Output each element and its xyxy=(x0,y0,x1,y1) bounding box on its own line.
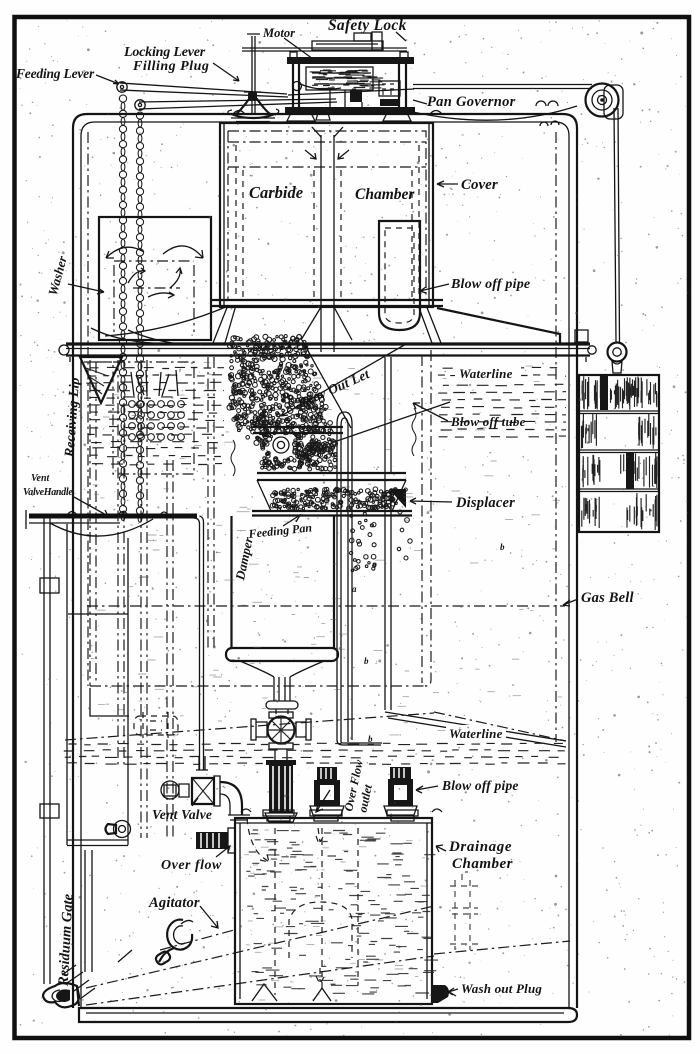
svg-text:Pan Governor: Pan Governor xyxy=(427,94,516,110)
svg-text:Vent Valve: Vent Valve xyxy=(152,807,212,822)
svg-text:b: b xyxy=(368,734,373,744)
svg-text:Cover: Cover xyxy=(461,177,498,193)
svg-text:ValveHandle: ValveHandle xyxy=(23,487,73,498)
svg-text:Safety Lock: Safety Lock xyxy=(328,17,407,34)
svg-text:b: b xyxy=(364,656,369,666)
svg-text:Blow off pipe: Blow off pipe xyxy=(441,778,519,793)
svg-text:Feeding Lever: Feeding Lever xyxy=(15,66,95,81)
svg-text:Carbide: Carbide xyxy=(249,183,303,202)
svg-text:Motor: Motor xyxy=(262,26,295,40)
svg-text:Over flow: Over flow xyxy=(161,858,222,873)
svg-text:a: a xyxy=(352,584,357,594)
svg-text:Locking Lever: Locking Lever xyxy=(123,45,206,60)
svg-text:Filling Plug: Filling Plug xyxy=(132,59,209,74)
svg-text:Waterline: Waterline xyxy=(459,366,513,381)
svg-text:Blow off tube: Blow off tube xyxy=(450,414,526,429)
svg-text:Blow off pipe: Blow off pipe xyxy=(450,277,530,292)
svg-text:Vent: Vent xyxy=(31,473,51,484)
svg-text:b: b xyxy=(500,542,505,552)
svg-text:Agitator: Agitator xyxy=(148,895,200,911)
svg-text:Drainage: Drainage xyxy=(448,839,512,855)
svg-text:Waterline: Waterline xyxy=(449,726,503,741)
svg-text:Chamber: Chamber xyxy=(355,186,415,203)
svg-text:Displacer: Displacer xyxy=(455,495,515,511)
svg-text:Wash out Plug: Wash out Plug xyxy=(461,981,542,996)
svg-text:Gas Bell: Gas Bell xyxy=(581,590,634,606)
svg-text:Chamber: Chamber xyxy=(452,856,513,872)
